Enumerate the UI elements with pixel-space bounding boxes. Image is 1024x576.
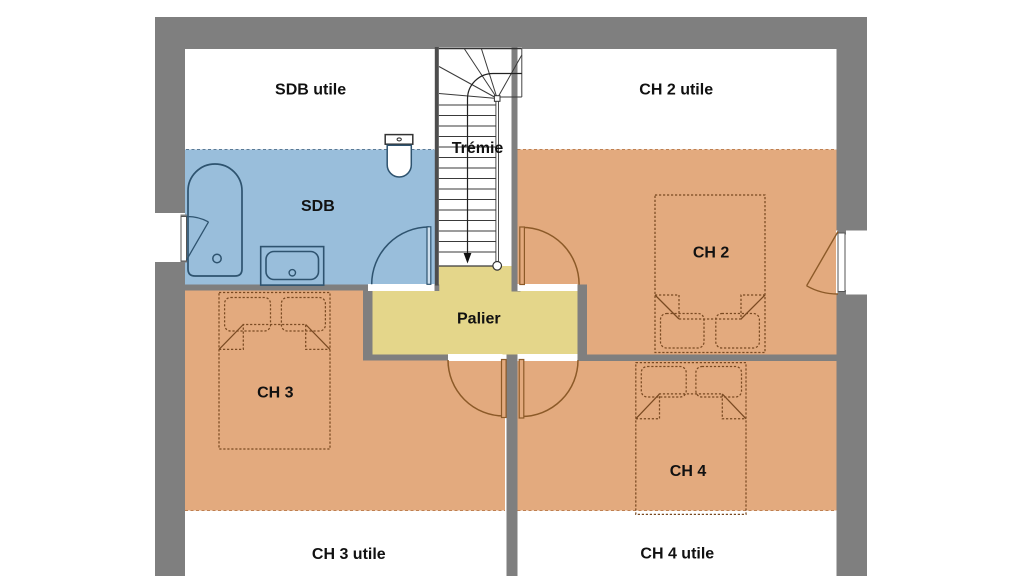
svg-text:Trémie: Trémie	[452, 140, 504, 157]
svg-text:Palier: Palier	[457, 311, 501, 328]
svg-text:CH 3 utile: CH 3 utile	[312, 546, 386, 563]
svg-text:CH 2: CH 2	[693, 245, 730, 262]
svg-text:CH 3: CH 3	[257, 385, 294, 402]
svg-text:SDB: SDB	[301, 198, 335, 215]
svg-text:CH 4: CH 4	[670, 463, 707, 480]
svg-text:CH 2 utile: CH 2 utile	[639, 82, 713, 99]
svg-text:SDB utile: SDB utile	[275, 82, 346, 99]
svg-text:CH 4 utile: CH 4 utile	[640, 546, 714, 563]
